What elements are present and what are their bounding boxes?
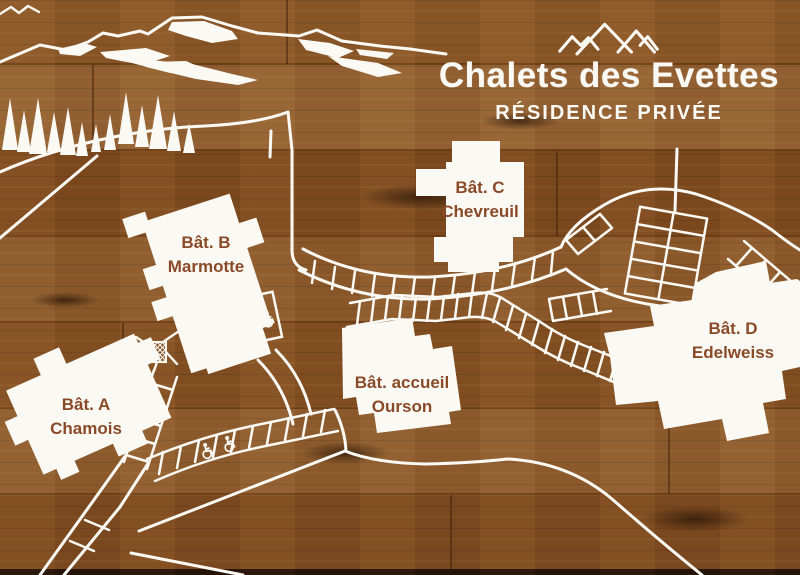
wheelchair-icon — [200, 442, 213, 459]
building-label-line2: Chevreuil — [441, 200, 518, 224]
site-map-board: Chalets des Evettes RÉSIDENCE PRIVÉE Bât… — [0, 0, 800, 575]
building-label-marmotte: Bât. B Marmotte — [168, 231, 245, 279]
building-label-edelweiss: Bât. D Edelweiss — [692, 317, 774, 365]
building-label-line1: Bât. C — [441, 176, 518, 200]
pine-trees-art — [2, 92, 195, 156]
parking-row-small — [566, 214, 612, 254]
building-label-chevreuil: Bât. C Chevreuil — [441, 176, 518, 224]
building-label-line2: Edelweiss — [692, 341, 774, 365]
building-label-line2: Chamois — [50, 417, 122, 441]
building-label-chamois: Bât. A Chamois — [50, 393, 122, 441]
snow-patches — [58, 21, 402, 85]
parking-strip-bottom — [147, 409, 338, 481]
sign-header: Chalets des Evettes RÉSIDENCE PRIVÉE — [418, 6, 800, 125]
building-label-line2: Marmotte — [168, 255, 245, 279]
sign-title: Chalets des Evettes — [418, 56, 800, 96]
building-label-line1: Bât. B — [168, 231, 245, 255]
three-mountain-peaks-icon — [554, 6, 664, 56]
sign-subtitle: RÉSIDENCE PRIVÉE — [418, 102, 800, 125]
building-label-line2: Ourson — [355, 395, 450, 419]
building-label-line1: Bât. A — [50, 393, 122, 417]
building-label-ourson: Bât. accueil Ourson — [355, 371, 450, 419]
parking-row-edelweiss — [549, 289, 611, 321]
parking-arc — [312, 251, 553, 299]
building-label-line1: Bât. D — [692, 317, 774, 341]
building-label-line1: Bât. accueil — [355, 371, 450, 395]
